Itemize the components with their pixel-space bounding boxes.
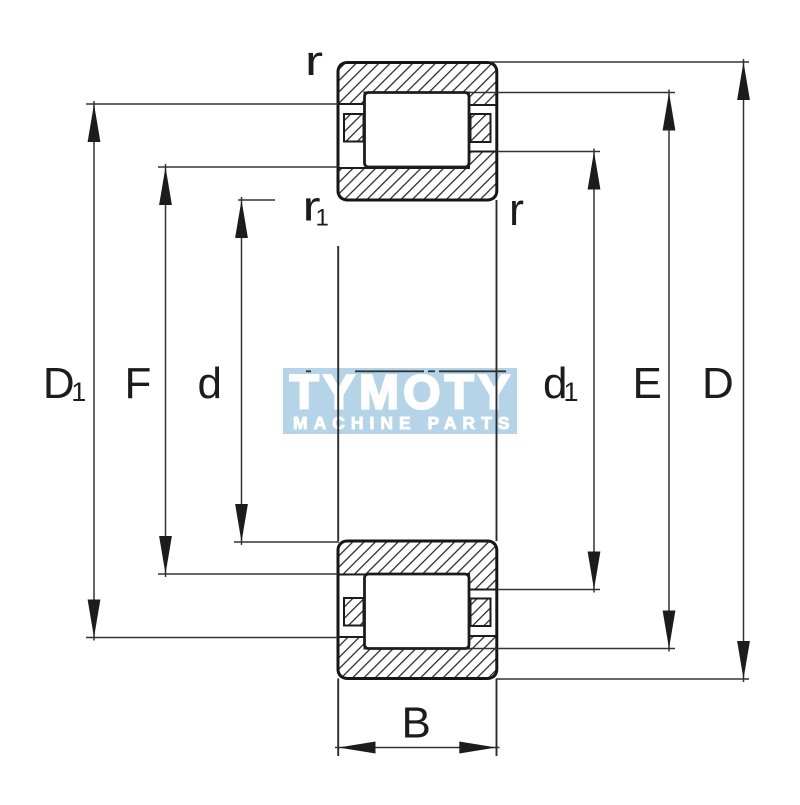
- svg-text:D: D: [43, 359, 75, 408]
- svg-text:F: F: [125, 359, 152, 408]
- svg-text:D: D: [702, 359, 734, 408]
- svg-text:1: 1: [316, 205, 329, 232]
- svg-text:r: r: [305, 38, 323, 85]
- svg-text:r: r: [509, 184, 524, 235]
- svg-text:TYMOTY: TYMOTY: [290, 367, 515, 420]
- svg-text:d: d: [198, 359, 222, 408]
- svg-text:E: E: [633, 359, 662, 408]
- svg-text:1: 1: [564, 377, 579, 407]
- svg-text:1: 1: [71, 377, 86, 407]
- svg-text:B: B: [402, 699, 431, 748]
- svg-text:MACHINE PARTS: MACHINE PARTS: [293, 413, 516, 433]
